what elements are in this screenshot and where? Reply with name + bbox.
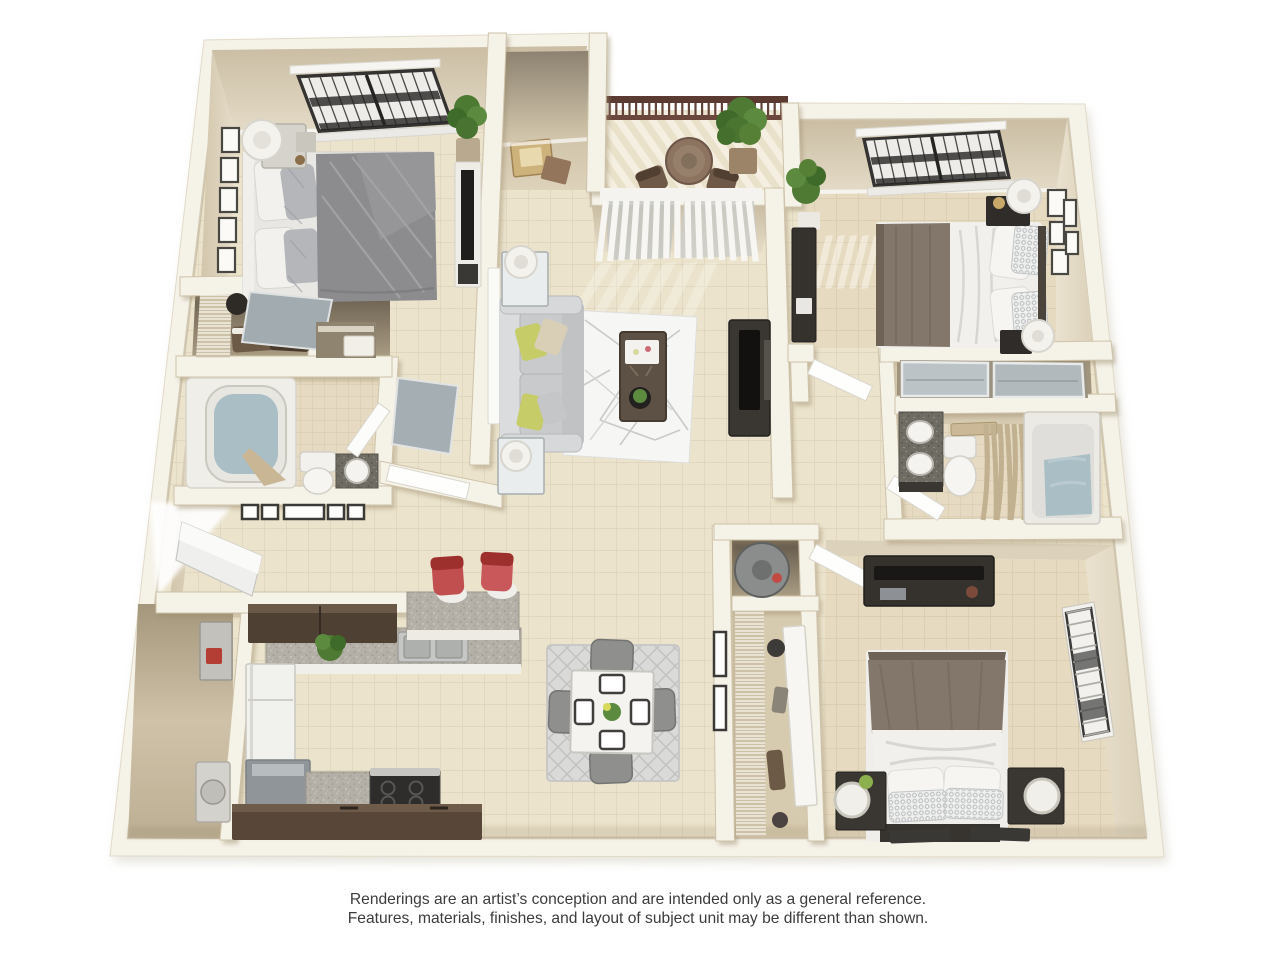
- svg-text:Renderings are an artist’s con: Renderings are an artist’s conception an…: [350, 891, 926, 908]
- svg-text:Features, materials, finishes,: Features, materials, finishes, and layou…: [348, 910, 928, 927]
